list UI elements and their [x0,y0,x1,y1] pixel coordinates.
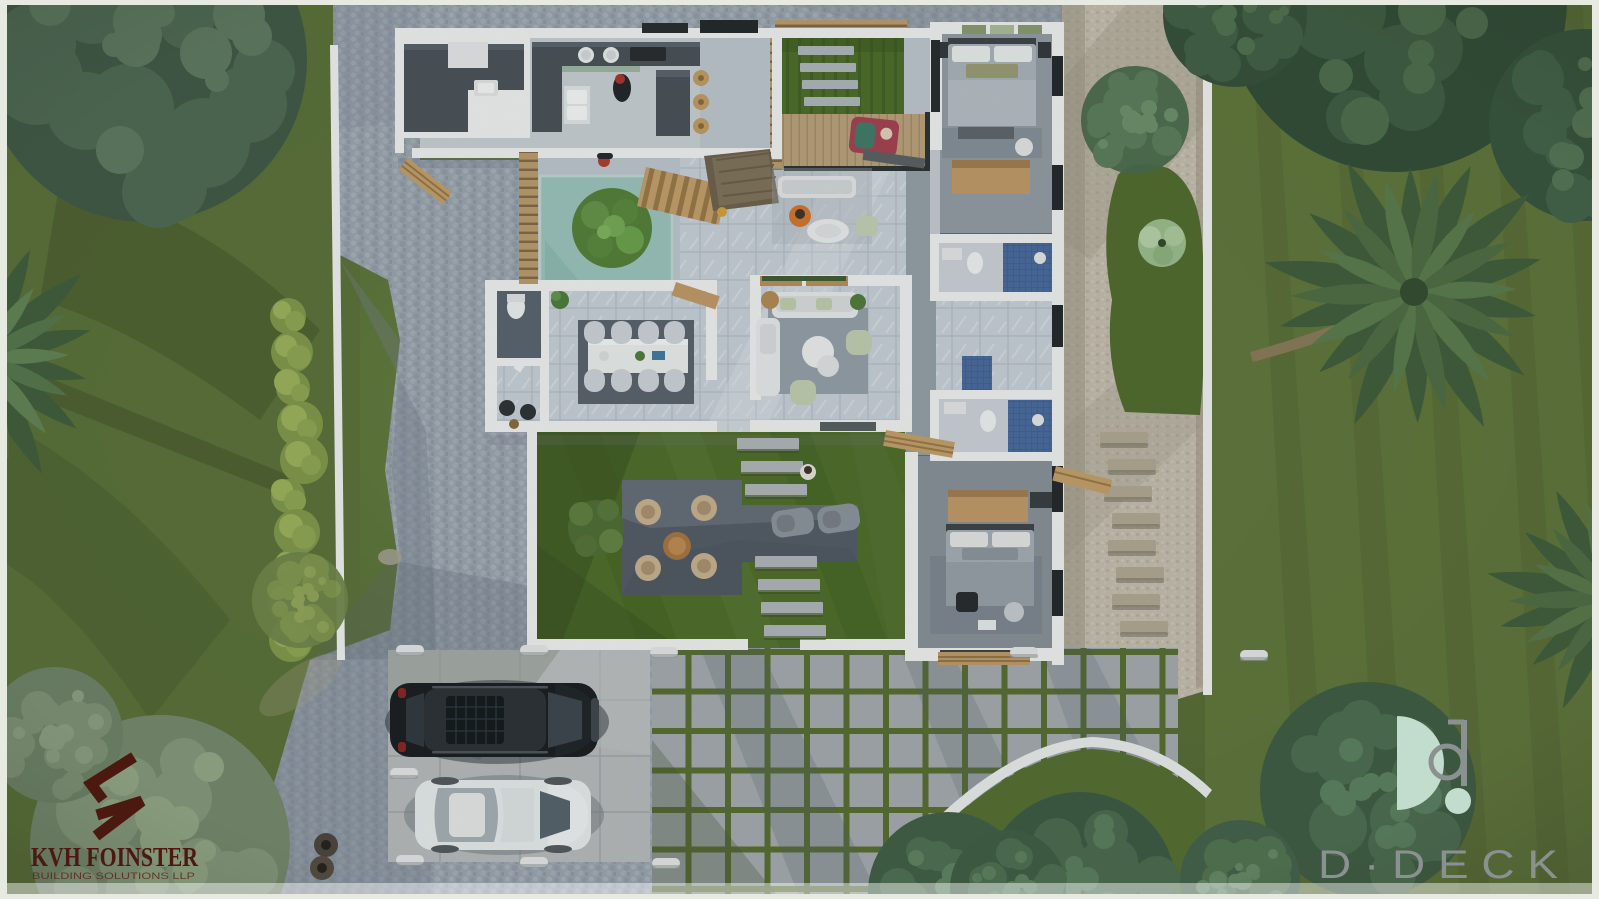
svg-text:BUILDING SOLUTIONS LLP: BUILDING SOLUTIONS LLP [32,871,195,881]
svg-text:D · D E C K: D · D E C K [1318,843,1558,887]
svg-text:KVH FOINSTER: KVH FOINSTER [31,842,198,872]
